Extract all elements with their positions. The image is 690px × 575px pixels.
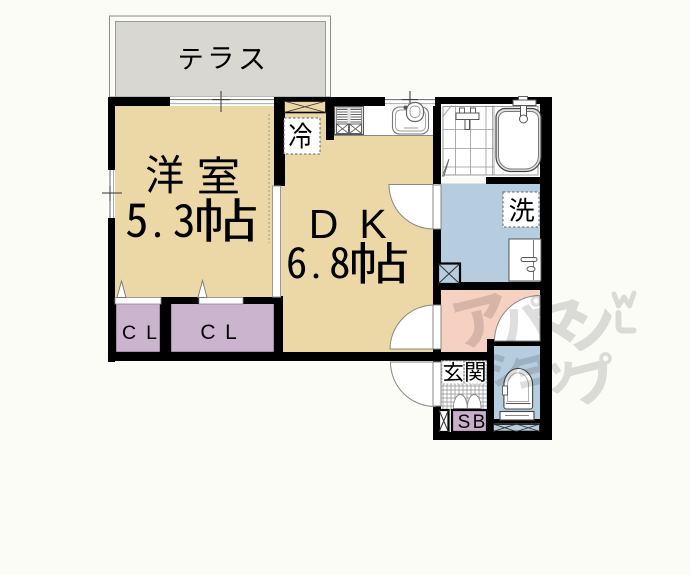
svg-text:K: K [359,201,386,247]
svg-text:S: S [458,412,471,433]
svg-text:B: B [473,412,486,433]
svg-text:C: C [200,321,215,344]
svg-text:L: L [225,321,237,344]
svg-text:C: C [122,322,136,344]
svg-text:L: L [146,322,157,344]
svg-text:D: D [309,201,339,247]
